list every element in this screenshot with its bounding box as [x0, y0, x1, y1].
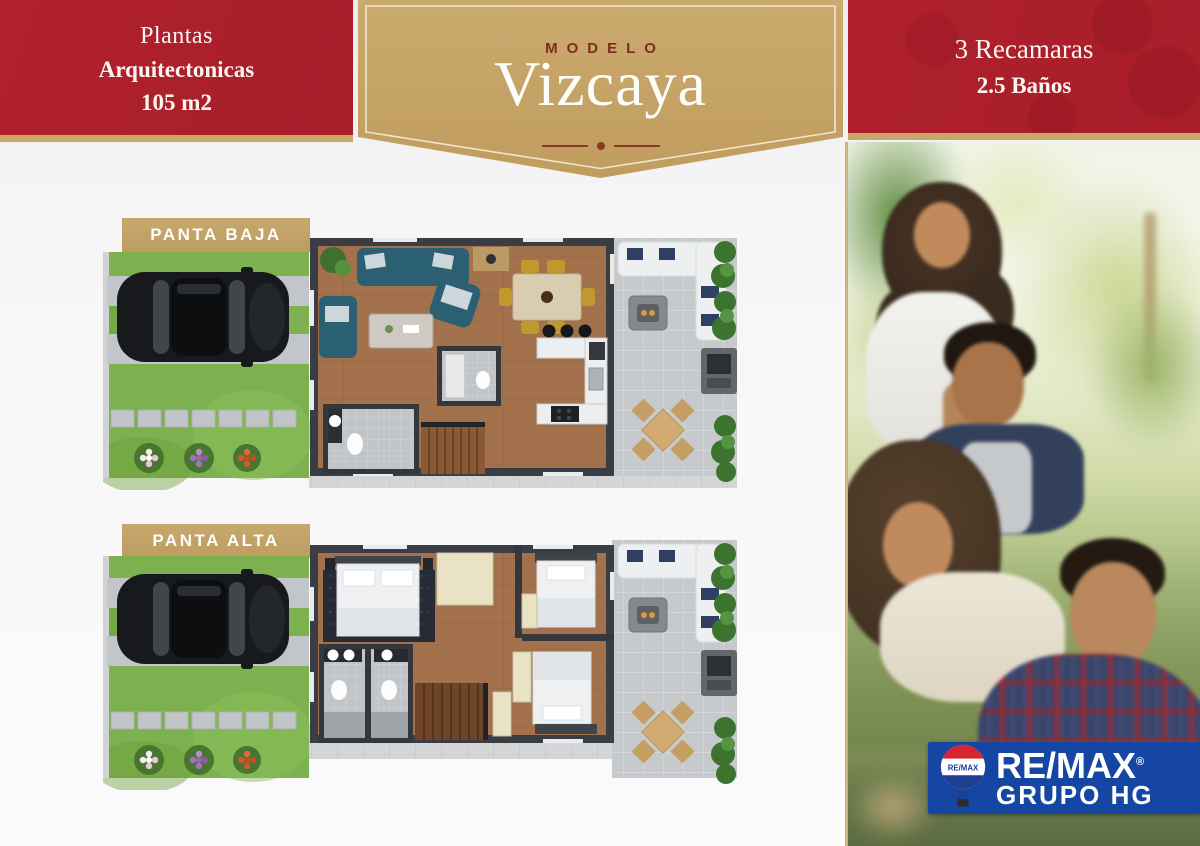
stepping-stones: [111, 712, 296, 729]
patio-below: [612, 540, 737, 784]
front-yard: [103, 252, 313, 490]
flower-bed: [134, 443, 261, 473]
wall-center: [515, 545, 522, 638]
ribbon-divider-ornament: [358, 142, 843, 150]
dried-leaves: [848, 772, 938, 842]
balloon-wordmark: RE/MAX: [948, 764, 979, 773]
plans-title: Plantas: [0, 23, 353, 50]
father-face: [1070, 562, 1156, 666]
flyer-page: Plantas Arquitectonicas 105 m2 MODELO Vi…: [0, 0, 1200, 846]
car: [117, 569, 289, 669]
car: [117, 267, 289, 367]
sidewalk: [309, 743, 612, 759]
family-photo: RE/MAX RE/MAX® GRUPO HG: [845, 142, 1200, 846]
upper-bathrooms: [319, 644, 413, 743]
right-banner: 3 Recamaras 2.5 Baños: [848, 0, 1200, 133]
bedrooms-text: 3 Recamaras: [848, 34, 1200, 65]
plans-subtitle: Arquitectonicas: [0, 57, 353, 83]
brand-group: GRUPO HG: [996, 783, 1154, 808]
remax-logo-box: RE/MAX RE/MAX® GRUPO HG: [928, 742, 1200, 814]
girl-face: [914, 202, 970, 268]
stairs: [415, 683, 511, 740]
grill: [701, 348, 737, 394]
closet-hall: [437, 553, 493, 605]
grill: [701, 650, 737, 696]
sidewalk: [309, 476, 737, 488]
area-value: 105 m2: [0, 90, 353, 116]
bathrooms-text: 2.5 Baños: [848, 73, 1200, 99]
remax-balloon-icon: RE/MAX: [934, 742, 992, 814]
registered-mark: ®: [1136, 756, 1144, 768]
left-banner: Plantas Arquitectonicas 105 m2: [0, 0, 353, 135]
stepping-stones: [111, 410, 296, 427]
house-ground-floor: [310, 238, 614, 476]
powder-bathroom: [323, 404, 419, 474]
right-banner-gold-strip: [848, 133, 1200, 140]
fire-table: [629, 296, 667, 330]
house-upper-floor: [310, 545, 614, 743]
floor-plan-upper: [103, 532, 737, 790]
boy-face: [952, 342, 1024, 428]
stairs: [421, 422, 485, 474]
front-yard: [103, 556, 313, 790]
flower-bed: [134, 745, 261, 775]
left-banner-gold-strip: [0, 135, 353, 142]
wall-bedrooms: [522, 634, 614, 641]
floor-plan-ground: [103, 230, 737, 490]
master-bedroom: [323, 556, 435, 642]
patio: [612, 238, 737, 482]
center-bathroom: [437, 346, 501, 406]
remax-wordmark: RE/MAX® GRUPO HG: [996, 749, 1154, 808]
fire-table: [629, 598, 667, 632]
model-name: Vizcaya: [358, 52, 843, 116]
